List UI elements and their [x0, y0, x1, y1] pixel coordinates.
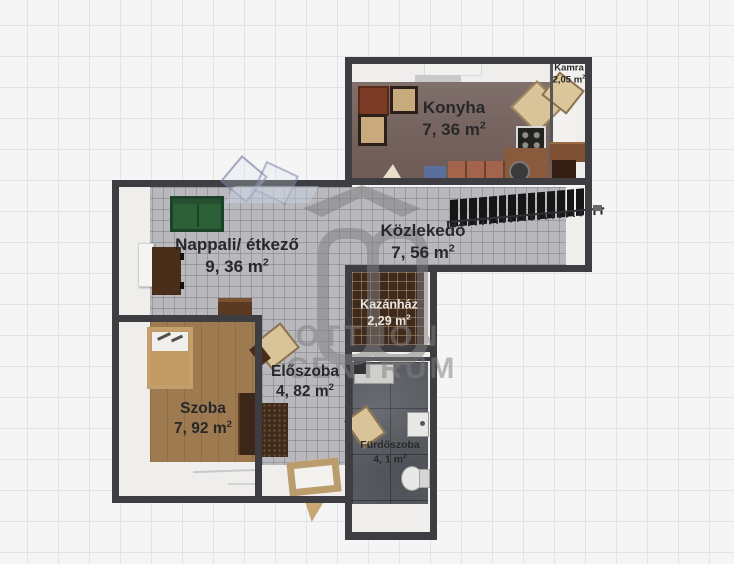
kitchen-chair	[390, 86, 418, 114]
room-area: 2,05 m2	[553, 75, 586, 88]
room-area: 7, 92 m2	[174, 419, 232, 439]
bedroom-entry-wall	[255, 315, 262, 503]
left-block-wall-bottom	[112, 496, 352, 503]
sink-unit	[424, 166, 446, 178]
kitchen-table	[358, 86, 389, 116]
kitchen-wall-bottom	[345, 178, 592, 185]
doormat	[286, 457, 341, 496]
room-name: Konyha	[422, 97, 486, 119]
room-label-nappali: Nappali/ étkező 9, 36 m2	[175, 234, 299, 278]
room-label-kozlekedo: Közlekedő 7, 56 m2	[380, 220, 465, 264]
room-name: Fürdőszoba	[360, 439, 420, 453]
toilet-tank	[419, 469, 430, 488]
room-area: 2,29 m2	[360, 313, 418, 329]
room-name: Kamra	[553, 63, 586, 75]
room-area: 4, 82 m2	[271, 382, 339, 402]
washbasin	[407, 412, 429, 437]
kitchen-corridor-wall-right	[585, 57, 592, 272]
bathroom-dark-unit	[354, 360, 366, 374]
room-label-szoba: Szoba 7, 92 m2	[174, 399, 232, 439]
room-area: 7, 36 m2	[422, 119, 486, 141]
window-bar	[415, 75, 461, 82]
counter-boxes	[448, 161, 505, 179]
room-label-kamra: Kamra 2,05 m2	[553, 63, 586, 88]
kitchen-wall-left	[345, 57, 352, 185]
bathroom-wall-top	[347, 357, 433, 361]
room-label-furdoszoba: Fürdőszoba 4, 1 m2	[360, 439, 420, 467]
room-area: 7, 56 m2	[380, 242, 465, 264]
railing-end-post	[593, 205, 602, 211]
sofa-backrest	[173, 199, 221, 204]
room-label-eloszoba: Előszoba 4, 82 m2	[271, 362, 339, 402]
room-name: Kazánház	[360, 297, 418, 313]
corridor-wall-bottom	[345, 265, 592, 272]
sideboard-foot	[180, 282, 184, 289]
room-label-kazanhaz: Kazánház 2,29 m2	[360, 297, 418, 330]
floor-plan: OTTHON CENTRUM Konyha 7, 36 m2 Kamra 2,0…	[0, 0, 734, 564]
room-name: Előszoba	[271, 362, 339, 382]
left-outer-wall	[112, 180, 119, 503]
column-wall-bottom	[345, 532, 437, 540]
living-bedroom-wall	[112, 315, 262, 322]
room-name: Szoba	[174, 399, 232, 419]
boiler-wall-bottom	[345, 345, 437, 352]
sofa-cushion-divider	[197, 203, 199, 227]
room-label-konyha: Konyha 7, 36 m2	[422, 97, 486, 141]
column-wall-left	[345, 265, 352, 540]
entry-wardrobe	[262, 403, 288, 457]
sofa	[170, 196, 224, 232]
room-area: 4, 1 m2	[360, 453, 420, 467]
room-name: Nappali/ étkező	[175, 234, 299, 256]
kitchen-chair	[358, 114, 387, 146]
bed	[147, 327, 193, 389]
room-name: Közlekedő	[380, 220, 465, 242]
column-wall-right	[430, 265, 437, 540]
glass-chair-shadow	[225, 186, 319, 203]
room-area: 9, 36 m2	[175, 256, 299, 278]
faucet	[420, 421, 425, 426]
floor-scratch	[228, 483, 258, 485]
kitchen-cabinet	[550, 142, 586, 162]
